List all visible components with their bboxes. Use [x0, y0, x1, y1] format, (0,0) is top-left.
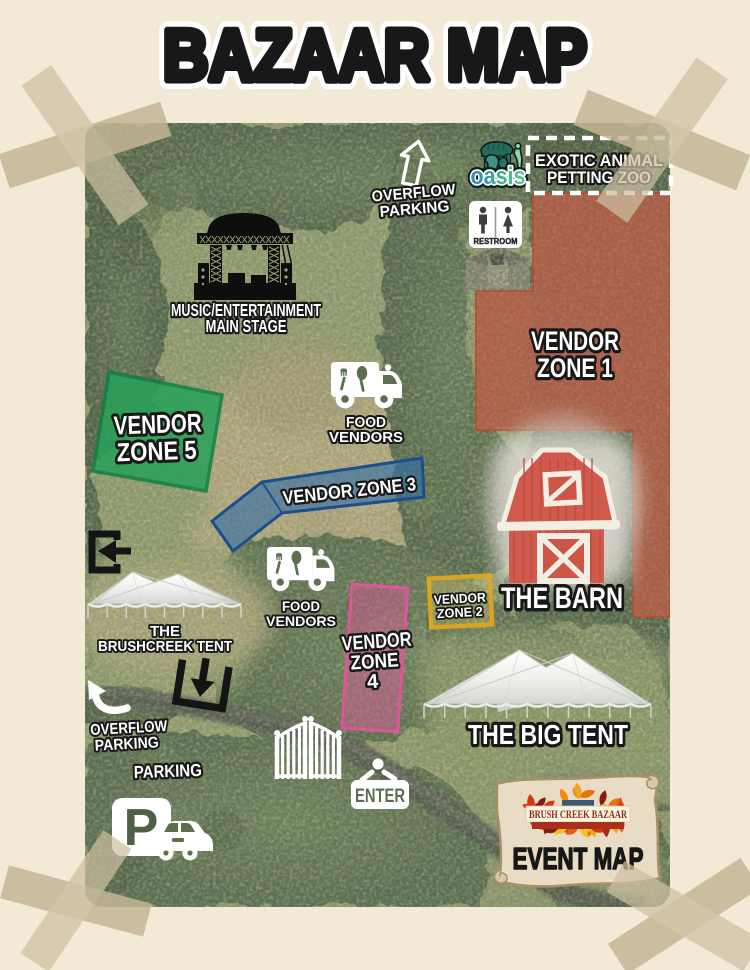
svg-text:BRUSH CREEK BAZAAR: BRUSH CREEK BAZAAR — [529, 807, 627, 821]
svg-text:PARKING: PARKING — [133, 760, 202, 782]
svg-text:PARKING: PARKING — [94, 734, 159, 754]
svg-text:ENTER: ENTER — [355, 786, 405, 807]
svg-text:THE BARN: THE BARN — [501, 582, 623, 615]
svg-text:ZONE 2: ZONE 2 — [436, 604, 483, 621]
svg-text:BRUSHCREEK TENT: BRUSHCREEK TENT — [98, 639, 232, 655]
svg-text:FOOD: FOOD — [346, 415, 386, 431]
svg-text:THE BIG TENT: THE BIG TENT — [468, 719, 628, 750]
svg-text:FOOD: FOOD — [282, 598, 320, 614]
svg-text:VENDOR: VENDOR — [531, 326, 619, 356]
svg-text:MAIN STAGE: MAIN STAGE — [206, 316, 287, 336]
svg-text:BAZAAR MAP: BAZAAR MAP — [163, 16, 587, 96]
svg-text:RESTROOM: RESTROOM — [474, 237, 518, 246]
svg-text:oasis: oasis — [471, 163, 526, 190]
svg-text:THE: THE — [150, 624, 180, 640]
svg-text:VENDORS: VENDORS — [329, 430, 403, 446]
svg-text:ZONE 1: ZONE 1 — [537, 353, 613, 383]
svg-text:ZONE 5: ZONE 5 — [116, 435, 197, 468]
svg-text:VENDORS: VENDORS — [266, 613, 336, 629]
